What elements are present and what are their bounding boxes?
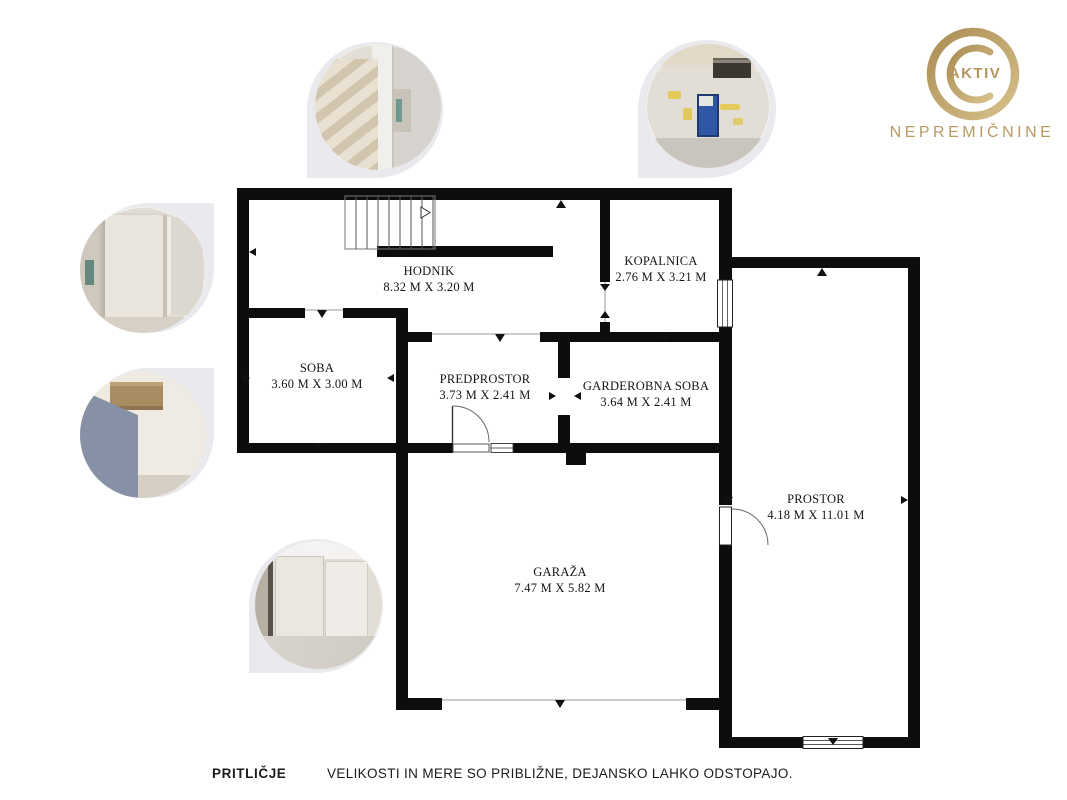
aktiv-nepremicnine-logo: AKTIV NEPREMIČNINE [885,12,1060,152]
room-dims: 3.60 M X 3.00 M [271,376,362,392]
photo-detail [110,382,163,410]
room-label-predprostor: PREDPROSTOR 3.73 M X 2.41 M [439,371,530,403]
photo-detail [720,104,740,110]
photo-detail [275,556,323,642]
floor-name: PRITLIČJE [212,766,286,781]
photo-detail [105,215,167,326]
photo-detail [166,217,204,315]
photo-detail [646,138,770,168]
photo-detail [85,260,94,285]
photo-detail [268,556,273,635]
room-dims: 3.73 M X 2.41 M [439,387,530,403]
staircase [345,196,435,249]
photo-detail [315,59,378,170]
room-name: HODNIK [383,263,474,279]
photo-detail [713,58,751,79]
photo-detail [668,91,680,98]
room-name: SOBA [271,360,362,376]
stairwell-photo [315,44,441,170]
photo-detail [683,108,692,119]
room-name: KOPALNICA [615,253,706,269]
room-label-prostor: PROSTOR 4.18 M X 11.01 M [767,491,864,523]
entry-door [453,406,514,453]
room-dims: 8.32 M X 3.20 M [383,279,474,295]
disclaimer-text: VELIKOSTI IN MERE SO PRIBLIŽNE, DEJANSKO… [327,766,793,781]
room-label-garderobna: GARDEROBNA SOBA 3.64 M X 2.41 M [583,378,709,410]
photo-detail [396,99,402,122]
prostor-door [720,507,769,545]
room-dims: 4.18 M X 11.01 M [767,507,864,523]
room-name: GARAŽA [514,564,605,580]
room-name: PROSTOR [767,491,864,507]
room-label-soba: SOBA 3.60 M X 3.00 M [271,360,362,392]
logo-brand-text: NEPREMIČNINE [890,122,1055,141]
stair-direction-icon [421,207,430,218]
room-dims: 3.64 M X 2.41 M [583,394,709,410]
room-name: PREDPROSTOR [439,371,530,387]
room-name: GARDEROBNA SOBA [583,378,709,394]
photo-detail [255,636,383,669]
room-label-kopalnica: KOPALNICA 2.76 M X 3.21 M [615,253,706,285]
photo-detail [646,44,770,65]
photo-detail [80,317,206,333]
photo-detail [733,118,743,124]
logo-badge-text: AKTIV [949,65,1002,82]
room-label-garaza: GARAŽA 7.47 M X 5.82 M [514,564,605,596]
room-dims: 7.47 M X 5.82 M [514,580,605,596]
room-dims: 2.76 M X 3.21 M [615,269,706,285]
kopalnica-window [718,280,733,327]
bathroom-roughin-photo [646,44,770,168]
floorplan-page: HODNIK 8.32 M X 3.20 M KOPALNICA 2.76 M … [0,0,1067,800]
garage-interior-photo [255,541,383,669]
photo-detail [699,96,713,106]
room-drywall-photo [80,207,206,333]
room-label-hodnik: HODNIK 8.32 M X 3.20 M [383,263,474,295]
room-grey-board-photo [80,372,206,498]
photo-detail [325,561,368,637]
